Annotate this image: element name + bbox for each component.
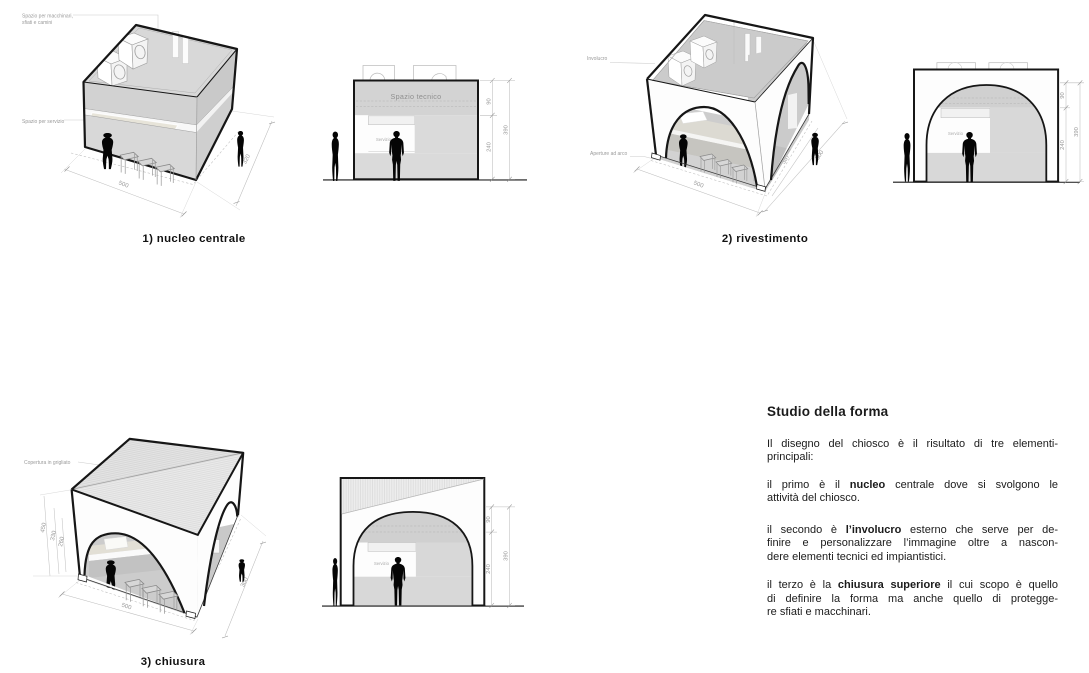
svg-text:450: 450 <box>40 522 48 534</box>
svg-text:Aperture ad arco: Aperture ad arco <box>590 151 627 157</box>
svg-text:3) chiusura: 3) chiusura <box>141 656 206 668</box>
svg-text:Spazio tecnico: Spazio tecnico <box>391 92 442 101</box>
svg-text:Spazio per macchinari,: Spazio per macchinari, <box>22 14 73 20</box>
svg-text:90: 90 <box>1060 92 1066 98</box>
svg-text:300: 300 <box>240 576 250 588</box>
svg-text:240: 240 <box>487 142 493 152</box>
svg-text:240: 240 <box>1060 140 1066 150</box>
svg-text:Spazio per servizio: Spazio per servizio <box>22 119 64 125</box>
svg-text:Involucro: Involucro <box>587 56 608 62</box>
svg-text:240: 240 <box>486 564 492 574</box>
svg-text:Copertura in grigliato: Copertura in grigliato <box>24 460 71 466</box>
svg-text:Servizio: Servizio <box>374 561 390 566</box>
svg-text:Servizio: Servizio <box>376 137 392 142</box>
svg-text:500: 500 <box>118 181 130 190</box>
svg-text:Servizio: Servizio <box>948 131 964 136</box>
svg-text:320: 320 <box>242 153 252 165</box>
svg-text:90: 90 <box>487 98 493 104</box>
svg-text:1) nucleo centrale: 1) nucleo centrale <box>142 233 245 245</box>
svg-text:390: 390 <box>504 125 510 135</box>
svg-text:330: 330 <box>50 530 58 542</box>
svg-text:90: 90 <box>486 516 492 522</box>
svg-text:260: 260 <box>58 536 66 548</box>
svg-text:sfiati e camini: sfiati e camini <box>22 20 52 26</box>
svg-text:500: 500 <box>693 181 705 190</box>
svg-text:390: 390 <box>504 551 510 561</box>
svg-text:390: 390 <box>1074 127 1080 137</box>
svg-text:2) rivestimento: 2) rivestimento <box>722 233 808 245</box>
svg-text:500: 500 <box>121 603 133 612</box>
